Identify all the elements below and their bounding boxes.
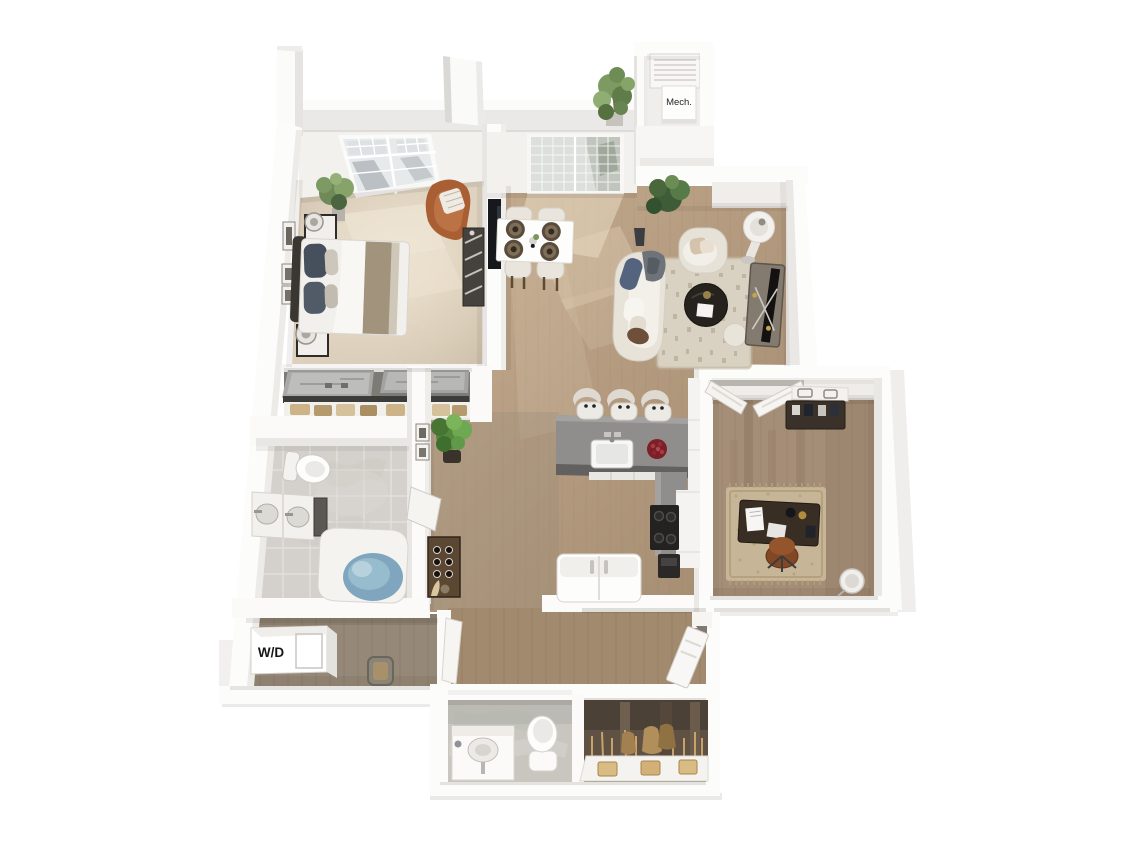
svg-text:W/D: W/D [258, 645, 284, 660]
svg-text:Mech.: Mech. [666, 97, 692, 108]
